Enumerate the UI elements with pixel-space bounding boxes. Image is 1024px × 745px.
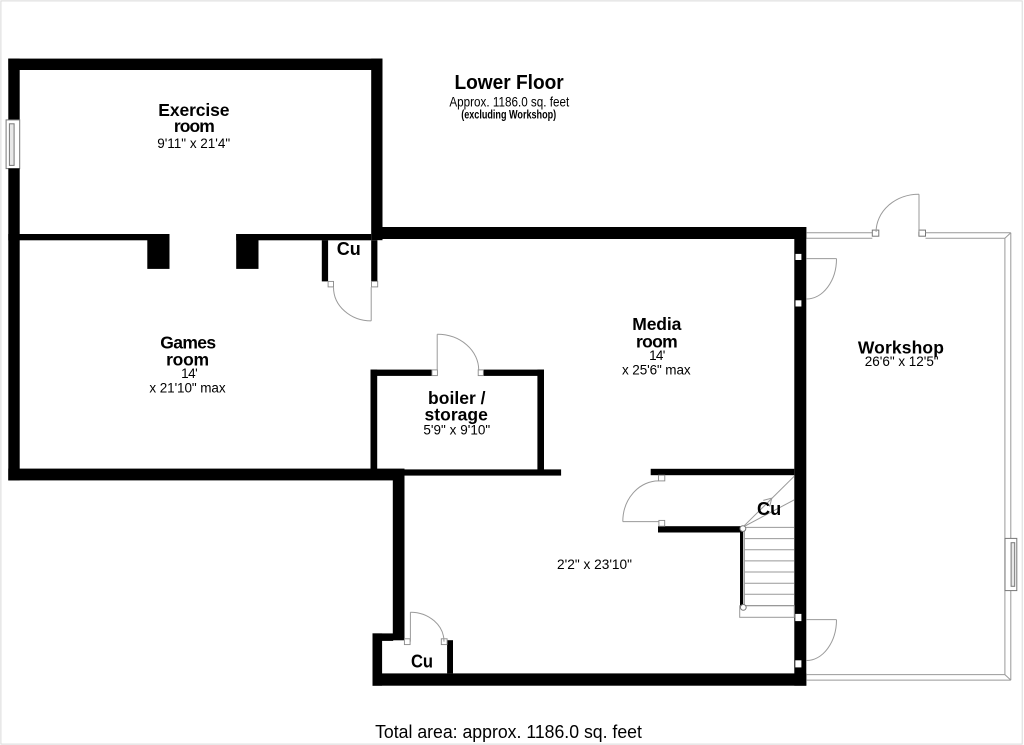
- svg-text:Total area: approx. 1186.0 sq.: Total area: approx. 1186.0 sq. feet: [375, 722, 642, 742]
- svg-text:room: room: [174, 116, 215, 136]
- svg-text:2'2" x 23'10": 2'2" x 23'10": [557, 557, 632, 572]
- svg-text:9'11" x 21'4": 9'11" x 21'4": [157, 136, 230, 151]
- svg-text:(excluding Workshop): (excluding Workshop): [461, 107, 556, 121]
- svg-text:Cu: Cu: [411, 651, 433, 672]
- svg-text:14': 14': [181, 366, 198, 381]
- svg-text:x 25'6" max: x 25'6" max: [622, 363, 691, 378]
- svg-text:14': 14': [649, 348, 665, 363]
- svg-text:storage: storage: [425, 404, 489, 424]
- svg-text:5'9" x 9'10": 5'9" x 9'10": [423, 423, 490, 438]
- svg-text:Cu: Cu: [337, 238, 361, 259]
- svg-text:26'6" x 12'5": 26'6" x 12'5": [865, 354, 939, 369]
- svg-text:x 21'10" max: x 21'10" max: [149, 380, 225, 395]
- svg-text:Lower Floor: Lower Floor: [454, 72, 563, 94]
- svg-text:Cu: Cu: [757, 498, 781, 519]
